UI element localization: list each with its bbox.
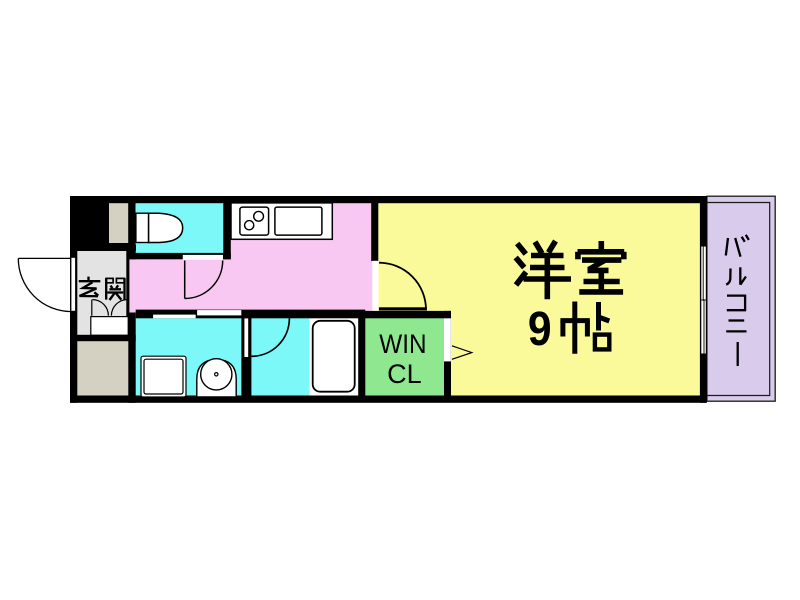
svg-text:9: 9	[528, 301, 552, 355]
svg-text:WIN: WIN	[379, 330, 426, 359]
svg-text:CL: CL	[387, 359, 422, 389]
